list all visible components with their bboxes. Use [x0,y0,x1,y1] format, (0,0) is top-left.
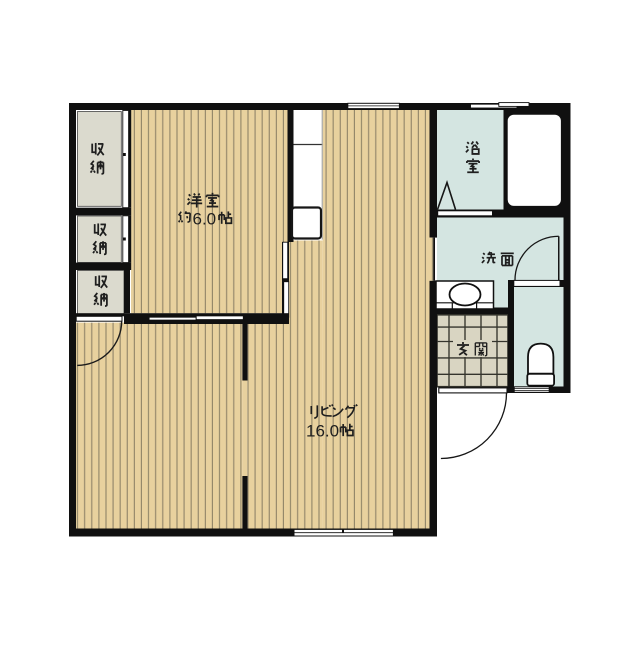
svg-text:16.0: 16.0 [306,422,339,441]
svg-text:6.0: 6.0 [193,210,217,229]
